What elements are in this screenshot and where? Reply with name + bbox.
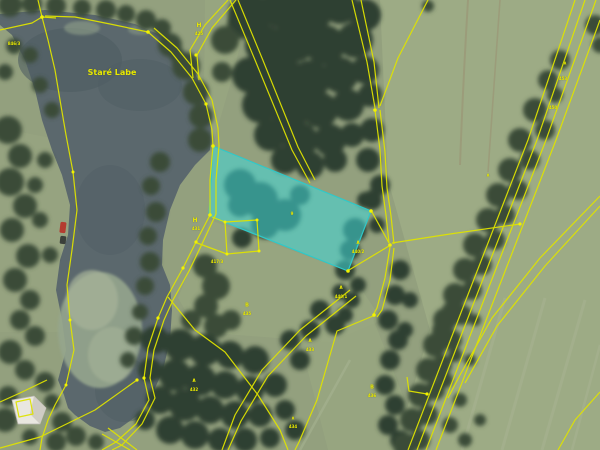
- orthophoto-layer: [0, 0, 600, 450]
- map-canvas[interactable]: Staré LabeH425846/3H431417/3B4359∧440/2∧…: [0, 0, 600, 450]
